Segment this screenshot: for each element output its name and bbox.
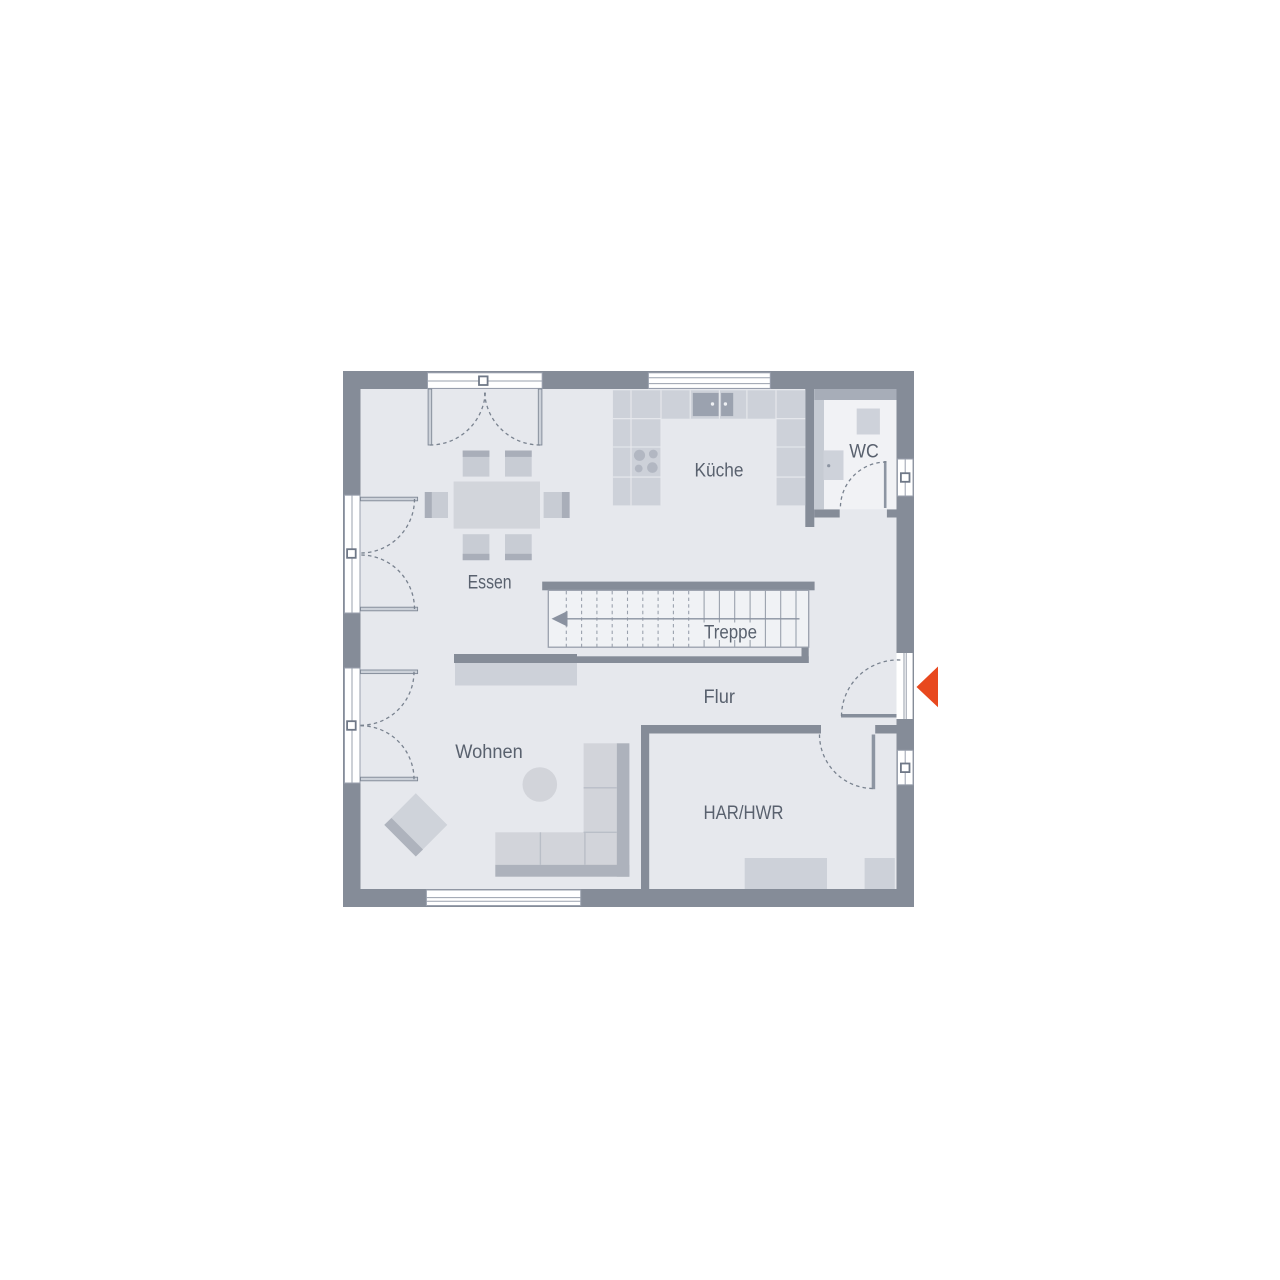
svg-text:HAR/HWR: HAR/HWR — [704, 802, 784, 824]
svg-text:Küche: Küche — [695, 460, 744, 482]
svg-text:Wohnen: Wohnen — [455, 741, 523, 763]
svg-text:Essen: Essen — [468, 571, 512, 593]
svg-text:WC: WC — [849, 441, 879, 463]
svg-text:Flur: Flur — [704, 686, 736, 708]
svg-text:Treppe: Treppe — [704, 622, 757, 644]
